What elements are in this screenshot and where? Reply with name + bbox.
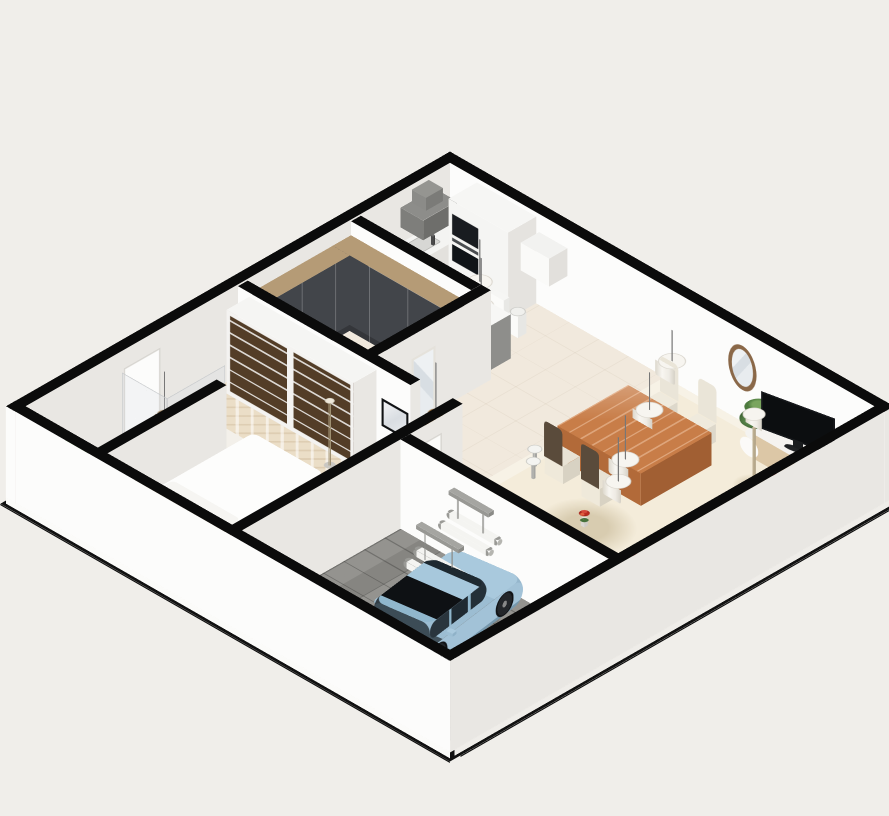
pendant-lamp-dining-1-wire xyxy=(672,330,673,362)
lamp-pole-right xyxy=(754,427,756,479)
pendant-lamp-living-wire xyxy=(618,437,619,482)
lamp-pole-right xyxy=(330,402,331,467)
hall-pendant-lamp-wire xyxy=(435,362,436,413)
pendant-lamp-dining-3-wire xyxy=(625,415,626,460)
3d-viewport[interactable] xyxy=(0,0,889,816)
pendant-lamp-dining-2-wire xyxy=(649,372,650,410)
kitchen-faucet-right xyxy=(433,235,435,246)
